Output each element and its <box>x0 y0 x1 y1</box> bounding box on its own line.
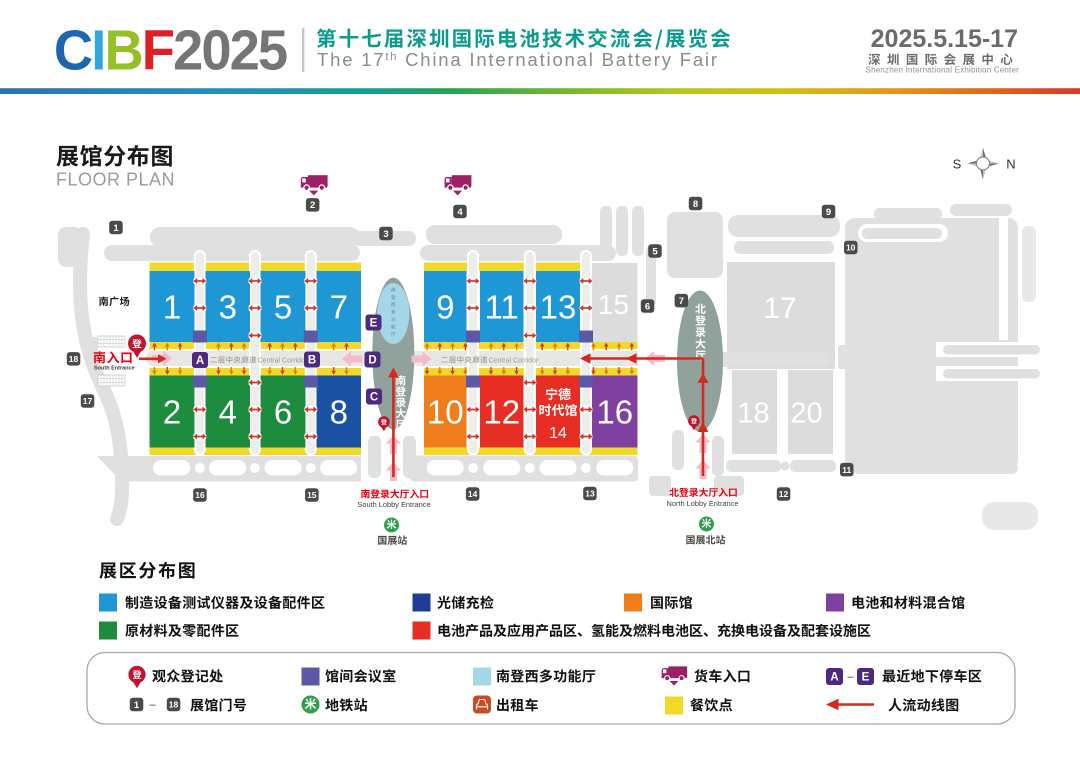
svg-text:A: A <box>196 355 204 367</box>
svg-text:CIBF2025: CIBF2025 <box>54 18 287 81</box>
svg-text:13: 13 <box>540 289 577 326</box>
svg-text:18: 18 <box>169 700 179 710</box>
svg-text:11: 11 <box>485 289 519 326</box>
svg-text:14: 14 <box>549 425 567 442</box>
svg-text:4: 4 <box>219 394 237 431</box>
svg-text:1: 1 <box>134 700 140 711</box>
svg-text:Shenzhen International Exhibit: Shenzhen International Exhibition Center <box>866 66 1020 75</box>
svg-text:1: 1 <box>163 289 181 326</box>
svg-text:–: – <box>149 699 156 711</box>
svg-text:South Entrance: South Entrance <box>94 366 135 372</box>
svg-text:Central Corridor: Central Corridor <box>489 358 539 365</box>
svg-text:6: 6 <box>645 301 650 312</box>
svg-text:7: 7 <box>679 296 684 307</box>
svg-text:The 17th China International B: The 17th China International Battery Fai… <box>317 49 719 70</box>
svg-text:8: 8 <box>693 199 698 210</box>
svg-text:4: 4 <box>457 207 463 218</box>
svg-text:20: 20 <box>790 398 822 430</box>
svg-text:16: 16 <box>596 394 633 431</box>
svg-text:C: C <box>370 392 378 404</box>
svg-text:18: 18 <box>737 398 769 430</box>
svg-text:7: 7 <box>330 289 348 326</box>
svg-text:2: 2 <box>163 394 181 431</box>
svg-text:Central Corridor: Central Corridor <box>258 358 308 365</box>
svg-text:B: B <box>308 355 316 367</box>
svg-text:A: A <box>830 672 838 684</box>
svg-text:17: 17 <box>763 292 796 325</box>
svg-text:16: 16 <box>195 490 205 500</box>
svg-text:2025.5.15-17: 2025.5.15-17 <box>871 25 1018 53</box>
svg-text:11: 11 <box>842 465 851 475</box>
svg-text:3: 3 <box>383 229 388 240</box>
svg-text:10: 10 <box>846 242 856 252</box>
svg-text:15: 15 <box>598 289 629 320</box>
svg-text:E: E <box>862 672 870 684</box>
svg-text:3: 3 <box>219 289 237 326</box>
svg-text:9: 9 <box>436 289 454 326</box>
svg-text:–: – <box>847 671 854 683</box>
svg-text:5: 5 <box>274 289 292 326</box>
svg-text:E: E <box>370 318 378 330</box>
svg-text:D: D <box>368 355 376 367</box>
svg-text:N: N <box>1006 157 1015 172</box>
svg-text:18: 18 <box>69 354 79 364</box>
svg-text:2: 2 <box>310 200 315 211</box>
svg-text:S: S <box>953 157 962 172</box>
svg-text:17: 17 <box>83 396 93 406</box>
svg-text:14: 14 <box>468 489 478 499</box>
svg-text:6: 6 <box>274 394 292 431</box>
svg-text:9: 9 <box>826 207 831 218</box>
svg-text:10: 10 <box>427 394 464 431</box>
svg-text:FLOOR PLAN: FLOOR PLAN <box>56 170 175 190</box>
svg-text:South Lobby Entrance: South Lobby Entrance <box>357 500 430 509</box>
svg-text:8: 8 <box>330 394 348 431</box>
svg-text:5: 5 <box>652 246 658 257</box>
svg-text:12: 12 <box>779 489 789 499</box>
svg-text:1: 1 <box>113 223 119 234</box>
svg-text:12: 12 <box>483 394 520 431</box>
svg-text:15: 15 <box>307 490 317 500</box>
svg-text:North Lobby Entrance: North Lobby Entrance <box>667 499 739 508</box>
svg-text:13: 13 <box>585 489 595 499</box>
